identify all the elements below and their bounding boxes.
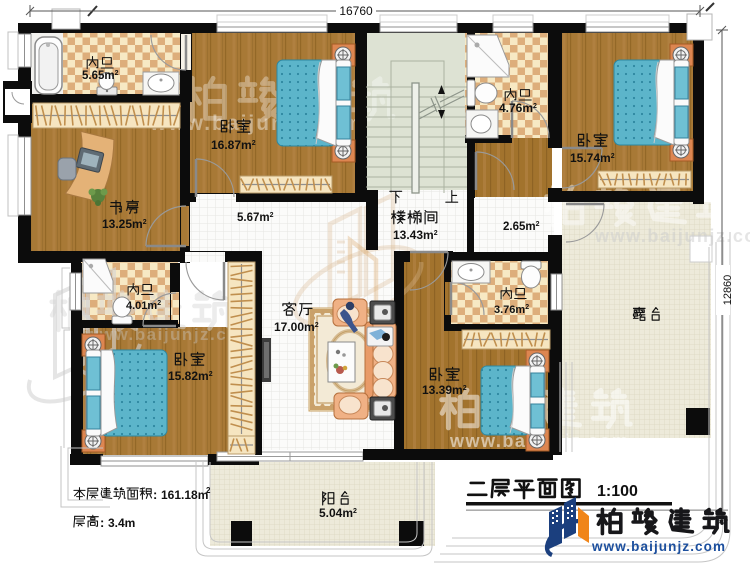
svg-text:5.65m2: 5.65m2 — [82, 70, 119, 82]
svg-text:13.43m2: 13.43m2 — [393, 228, 438, 242]
svg-text:4.76m2: 4.76m2 — [499, 101, 537, 115]
svg-text:15.74m2: 15.74m2 — [570, 151, 615, 165]
svg-text:3.4m: 3.4m — [108, 516, 135, 530]
svg-text:12860: 12860 — [722, 275, 734, 306]
svg-text:13.39m2: 13.39m2 — [422, 383, 467, 397]
svg-text:4.01m2: 4.01m2 — [126, 300, 161, 312]
svg-text:3.76m2: 3.76m2 — [494, 304, 529, 316]
svg-text:5.67m2: 5.67m2 — [237, 212, 274, 224]
svg-text:1:100: 1:100 — [597, 483, 638, 500]
svg-text:16760: 16760 — [339, 4, 373, 18]
svg-text:16.87m2: 16.87m2 — [211, 138, 256, 152]
svg-text:161.18m: 161.18m — [161, 488, 208, 502]
svg-text:13.25m2: 13.25m2 — [102, 217, 147, 231]
svg-text:17.00m2: 17.00m2 — [274, 320, 319, 334]
svg-text:2: 2 — [206, 486, 211, 495]
svg-text:5.04m2: 5.04m2 — [319, 506, 357, 520]
svg-text:www.baijunjz.com: www.baijunjz.com — [594, 226, 750, 246]
svg-text:15.82m2: 15.82m2 — [168, 369, 213, 383]
svg-text::: : — [153, 487, 157, 502]
svg-text:www.baijunjz.com: www.baijunjz.com — [591, 539, 726, 554]
svg-text::: : — [100, 515, 104, 530]
svg-text:2.65m2: 2.65m2 — [503, 221, 540, 233]
